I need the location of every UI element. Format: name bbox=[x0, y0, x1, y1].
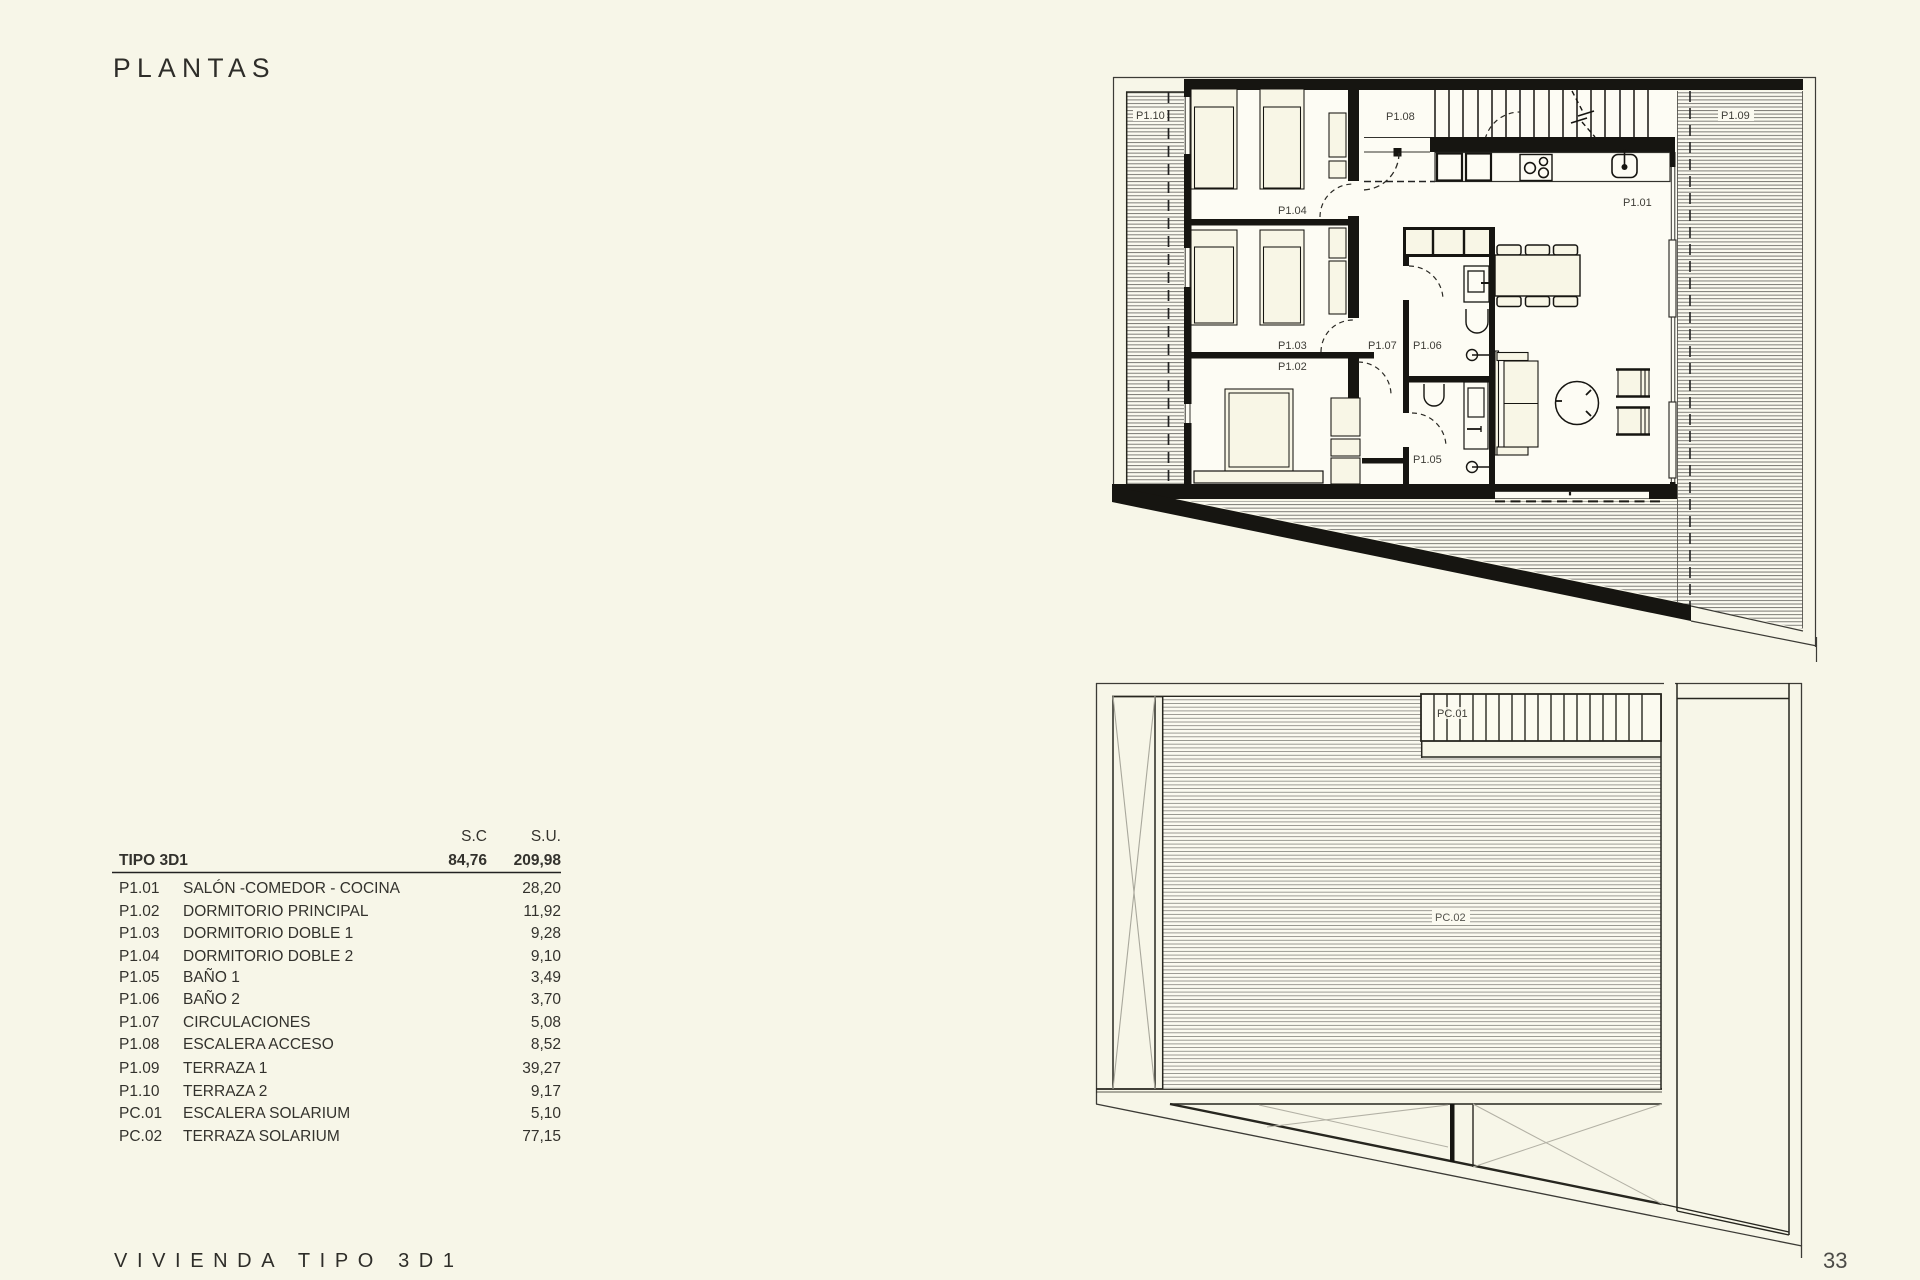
svg-text:DORMITORIO DOBLE 2: DORMITORIO DOBLE 2 bbox=[183, 948, 353, 965]
svg-text:P1.05: P1.05 bbox=[119, 969, 160, 986]
svg-text:3,70: 3,70 bbox=[531, 991, 562, 1008]
svg-text:33: 33 bbox=[1823, 1248, 1847, 1273]
svg-text:P1.02: P1.02 bbox=[1278, 361, 1307, 373]
svg-text:P1.04: P1.04 bbox=[1278, 205, 1307, 217]
svg-text:P1.01: P1.01 bbox=[1623, 197, 1652, 209]
svg-text:P1.09: P1.09 bbox=[119, 1060, 160, 1077]
svg-text:28,20: 28,20 bbox=[522, 880, 561, 897]
svg-text:209,98: 209,98 bbox=[514, 852, 562, 869]
svg-text:P1.10: P1.10 bbox=[1136, 110, 1165, 122]
svg-text:SALÓN -COMEDOR - COCINA: SALÓN -COMEDOR - COCINA bbox=[183, 880, 401, 897]
svg-text:PC.01: PC.01 bbox=[1437, 708, 1468, 720]
svg-text:11,92: 11,92 bbox=[523, 903, 561, 920]
svg-text:3,49: 3,49 bbox=[531, 969, 561, 986]
svg-text:5,10: 5,10 bbox=[531, 1105, 562, 1122]
svg-text:8,52: 8,52 bbox=[531, 1036, 561, 1053]
svg-text:P1.03: P1.03 bbox=[119, 925, 160, 942]
svg-text:S.C: S.C bbox=[461, 828, 487, 845]
svg-text:P1.07: P1.07 bbox=[1368, 340, 1397, 352]
svg-text:TIPO 3D1: TIPO 3D1 bbox=[119, 852, 188, 869]
svg-text:P1.03: P1.03 bbox=[1278, 340, 1307, 352]
svg-text:P1.08: P1.08 bbox=[119, 1036, 160, 1053]
svg-text:S.U.: S.U. bbox=[531, 828, 561, 845]
svg-text:TERRAZA 1: TERRAZA 1 bbox=[183, 1060, 267, 1077]
svg-text:PC.01: PC.01 bbox=[119, 1105, 162, 1122]
svg-text:9,17: 9,17 bbox=[531, 1083, 561, 1100]
svg-text:9,28: 9,28 bbox=[531, 925, 561, 942]
svg-text:P1.04: P1.04 bbox=[119, 948, 160, 965]
svg-text:39,27: 39,27 bbox=[522, 1060, 561, 1077]
svg-text:P1.06: P1.06 bbox=[1413, 340, 1442, 352]
svg-text:DORMITORIO PRINCIPAL: DORMITORIO PRINCIPAL bbox=[183, 903, 369, 920]
svg-text:77,15: 77,15 bbox=[522, 1128, 561, 1145]
svg-text:P1.05: P1.05 bbox=[1413, 454, 1442, 466]
svg-text:P1.10: P1.10 bbox=[119, 1083, 160, 1100]
svg-text:84,76: 84,76 bbox=[448, 852, 487, 869]
svg-text:P1.01: P1.01 bbox=[119, 880, 160, 897]
svg-text:PC.02: PC.02 bbox=[119, 1128, 162, 1145]
svg-text:P1.08: P1.08 bbox=[1386, 111, 1415, 123]
svg-text:P1.02: P1.02 bbox=[119, 903, 160, 920]
svg-text:CIRCULACIONES: CIRCULACIONES bbox=[183, 1014, 310, 1031]
svg-text:5,08: 5,08 bbox=[531, 1014, 561, 1031]
svg-text:DORMITORIO DOBLE 1: DORMITORIO DOBLE 1 bbox=[183, 925, 353, 942]
svg-text:TERRAZA SOLARIUM: TERRAZA SOLARIUM bbox=[183, 1128, 340, 1145]
svg-text:P1.07: P1.07 bbox=[119, 1014, 160, 1031]
svg-text:BAÑO 2: BAÑO 2 bbox=[183, 991, 240, 1008]
svg-text:P1.06: P1.06 bbox=[119, 991, 160, 1008]
svg-text:VIVIENDA TIPO 3D1: VIVIENDA TIPO 3D1 bbox=[114, 1250, 464, 1272]
svg-text:PLANTAS: PLANTAS bbox=[113, 53, 276, 83]
svg-text:PC.02: PC.02 bbox=[1435, 912, 1466, 924]
svg-text:9,10: 9,10 bbox=[531, 948, 562, 965]
svg-text:ESCALERA SOLARIUM: ESCALERA SOLARIUM bbox=[183, 1105, 350, 1122]
svg-text:BAÑO 1: BAÑO 1 bbox=[183, 969, 240, 986]
svg-text:TERRAZA 2: TERRAZA 2 bbox=[183, 1083, 267, 1100]
svg-text:ESCALERA ACCESO: ESCALERA ACCESO bbox=[183, 1036, 334, 1053]
svg-text:P1.09: P1.09 bbox=[1721, 110, 1750, 122]
